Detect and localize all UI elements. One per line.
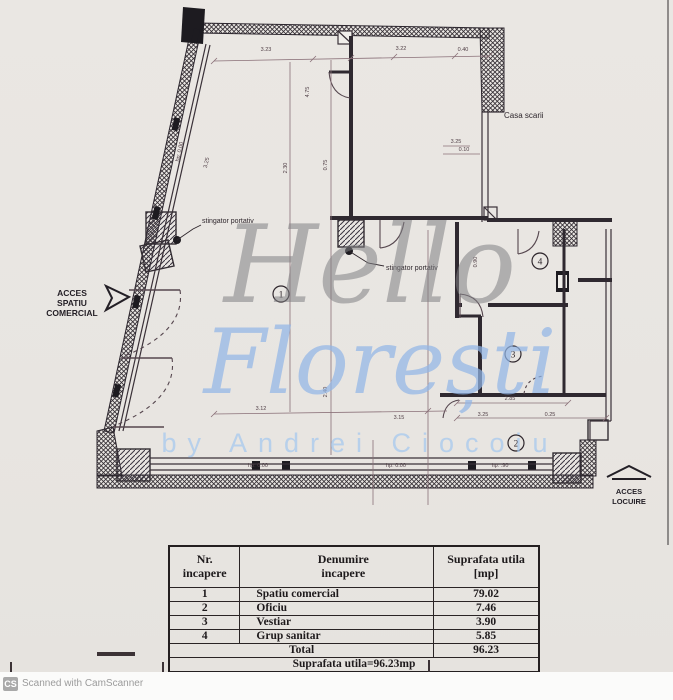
svg-text:LOCUIRE: LOCUIRE bbox=[612, 497, 646, 506]
room-2-bubble: 2 bbox=[508, 435, 524, 451]
svg-text:3.15: 3.15 bbox=[394, 415, 405, 421]
row4-name: Grup sanitar bbox=[240, 630, 434, 644]
svg-text:3.23: 3.23 bbox=[261, 47, 272, 53]
table-row: 2 Oficiu 7.46 bbox=[169, 602, 539, 616]
row3-name: Vestiar bbox=[240, 616, 434, 630]
row4-nr: 4 bbox=[169, 630, 240, 644]
scan-smudge bbox=[97, 652, 135, 656]
svg-text:0.40: 0.40 bbox=[458, 47, 469, 53]
dimension-lines bbox=[211, 53, 609, 505]
room-numbers: 1 4 3 2 bbox=[273, 253, 548, 451]
svg-text:ACCES: ACCES bbox=[57, 288, 87, 298]
room-4-bubble: 4 bbox=[532, 253, 548, 269]
row2-area: 7.46 bbox=[434, 602, 539, 616]
table-total-row: Total 96.23 bbox=[169, 644, 539, 658]
total-label: Total bbox=[169, 644, 434, 658]
svg-text:3.25: 3.25 bbox=[478, 412, 489, 418]
header-suprafata-line2: [mp] bbox=[474, 566, 499, 580]
casa-scarii-label: Casa scarii bbox=[504, 111, 544, 120]
svg-text:COMERCIAL: COMERCIAL bbox=[46, 308, 97, 318]
row1-nr: 1 bbox=[169, 588, 240, 602]
header-denumire-line1: Denumire bbox=[318, 552, 369, 566]
room-1-bubble: 1 bbox=[273, 286, 289, 302]
stingator-left-label: stingator portativ bbox=[202, 218, 254, 225]
svg-text:4.75: 4.75 bbox=[305, 87, 311, 98]
svg-text:3.12: 3.12 bbox=[256, 406, 267, 412]
wall-piers bbox=[117, 212, 608, 483]
scanned-floor-plan-page: 3.23 3.22 0.40 4.75 0.75 2.30 2.40 0.90 … bbox=[0, 0, 673, 700]
row1-area: 79.02 bbox=[434, 588, 539, 602]
room-3-bubble: 3 bbox=[505, 346, 521, 362]
svg-text:3.22: 3.22 bbox=[396, 46, 407, 52]
table-row: 4 Grup sanitar 5.85 bbox=[169, 630, 539, 644]
svg-text:hp: 0.00: hp: 0.00 bbox=[386, 463, 406, 469]
svg-text:2.30: 2.30 bbox=[283, 163, 289, 174]
svg-text:2: 2 bbox=[514, 440, 519, 450]
camscanner-strip: CS Scanned with CamScanner bbox=[0, 672, 673, 700]
svg-text:3.25: 3.25 bbox=[203, 157, 211, 169]
row3-area: 3.90 bbox=[434, 616, 539, 630]
row1-name: Spatiu comercial bbox=[240, 588, 434, 602]
svg-text:hp: 0.00: hp: 0.00 bbox=[248, 463, 268, 469]
svg-text:1: 1 bbox=[279, 291, 284, 301]
svg-text:SPATIU: SPATIU bbox=[57, 298, 87, 308]
stingator-right-label: stingator portativ bbox=[386, 265, 438, 272]
header-denumire: Denumire incapere bbox=[240, 546, 434, 588]
table-row: 3 Vestiar 3.90 bbox=[169, 616, 539, 630]
areas-table: Nr. incapere Denumire incapere Suprafata… bbox=[168, 545, 540, 673]
camscanner-badge-icon: CS bbox=[3, 677, 18, 691]
row4-area: 5.85 bbox=[434, 630, 539, 644]
svg-text:2.40: 2.40 bbox=[323, 387, 329, 398]
page-edge-shadow bbox=[667, 0, 669, 545]
row2-name: Oficiu bbox=[240, 602, 434, 616]
svg-text:0.25: 0.25 bbox=[545, 412, 556, 418]
interior-walls bbox=[329, 36, 612, 395]
thin-walls bbox=[119, 31, 611, 470]
acces-locuire-arrow-icon bbox=[607, 466, 651, 479]
svg-text:4: 4 bbox=[538, 258, 543, 268]
total-value: 96.23 bbox=[434, 644, 539, 658]
acces-spatiu-arrow-icon bbox=[106, 286, 129, 310]
header-denumire-line2: incapere bbox=[321, 566, 365, 580]
svg-text:3.25: 3.25 bbox=[451, 139, 462, 145]
header-suprafata-line1: Suprafata utila bbox=[447, 552, 525, 566]
svg-text:ACCES: ACCES bbox=[616, 487, 642, 496]
table-footer-row: Suprafata utila=96.23mp bbox=[169, 658, 539, 673]
acces-spatiu-label: ACCES SPATIU COMERCIAL bbox=[46, 288, 97, 318]
header-nr-line1: Nr. bbox=[197, 552, 213, 566]
svg-text:2.85: 2.85 bbox=[505, 396, 516, 402]
svg-text:3: 3 bbox=[511, 351, 516, 361]
table-header-row: Nr. incapere Denumire incapere Suprafata… bbox=[169, 546, 539, 588]
svg-text:0.75: 0.75 bbox=[323, 160, 329, 171]
acces-locuire-label: ACCES LOCUIRE bbox=[612, 487, 646, 506]
table-row: 1 Spatiu comercial 79.02 bbox=[169, 588, 539, 602]
header-nr-line2: incapere bbox=[183, 566, 227, 580]
svg-text:0.10: 0.10 bbox=[459, 147, 470, 153]
row3-nr: 3 bbox=[169, 616, 240, 630]
header-suprafata: Suprafata utila [mp] bbox=[434, 546, 539, 588]
svg-text:0.90: 0.90 bbox=[473, 257, 479, 268]
floor-plan-drawing: 3.23 3.22 0.40 4.75 0.75 2.30 2.40 0.90 … bbox=[0, 0, 673, 545]
row2-nr: 2 bbox=[169, 602, 240, 616]
header-nr: Nr. incapere bbox=[169, 546, 240, 588]
svg-text:hp: .90: hp: .90 bbox=[492, 463, 509, 469]
footer-summary: Suprafata utila=96.23mp bbox=[169, 658, 539, 673]
camscanner-credit: Scanned with CamScanner bbox=[22, 678, 143, 689]
